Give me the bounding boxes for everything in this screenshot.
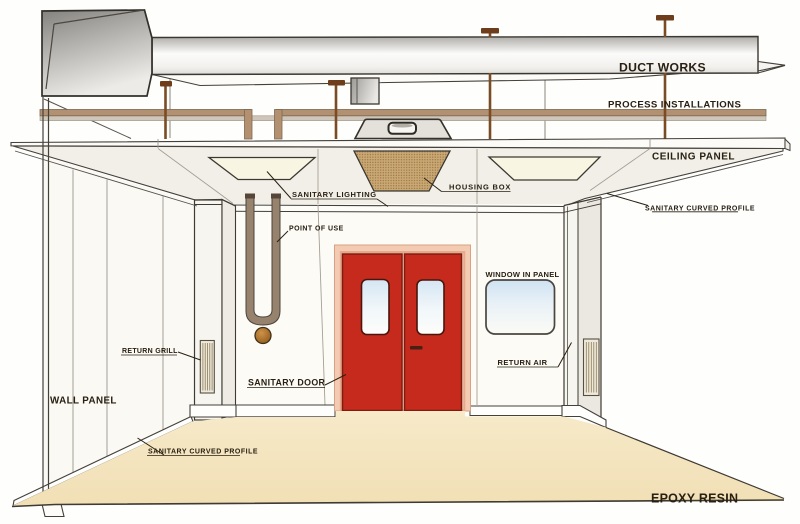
svg-text:POINT OF USE: POINT OF USE xyxy=(289,226,344,233)
svg-text:DUCT WORKS: DUCT WORKS xyxy=(619,61,706,75)
svg-text:CEILING PANEL: CEILING PANEL xyxy=(652,152,735,163)
svg-text:RETURN AIR: RETURN AIR xyxy=(498,358,548,367)
svg-text:SANITARY DOOR: SANITARY DOOR xyxy=(248,378,326,388)
svg-text:SANITARY LIGHTING: SANITARY LIGHTING xyxy=(292,190,377,199)
svg-text:SANITARY CURVED PROFILE: SANITARY CURVED PROFILE xyxy=(148,449,258,456)
svg-text:HOUSING BOX: HOUSING BOX xyxy=(449,183,511,192)
svg-text:RETURN GRILL: RETURN GRILL xyxy=(122,348,178,355)
svg-text:WALL PANEL: WALL PANEL xyxy=(50,396,117,407)
svg-text:EPOXY RESIN: EPOXY RESIN xyxy=(651,492,738,506)
svg-text:PROCESS INSTALLATIONS: PROCESS INSTALLATIONS xyxy=(608,100,742,111)
svg-text:WINDOW IN PANEL: WINDOW IN PANEL xyxy=(486,270,560,279)
